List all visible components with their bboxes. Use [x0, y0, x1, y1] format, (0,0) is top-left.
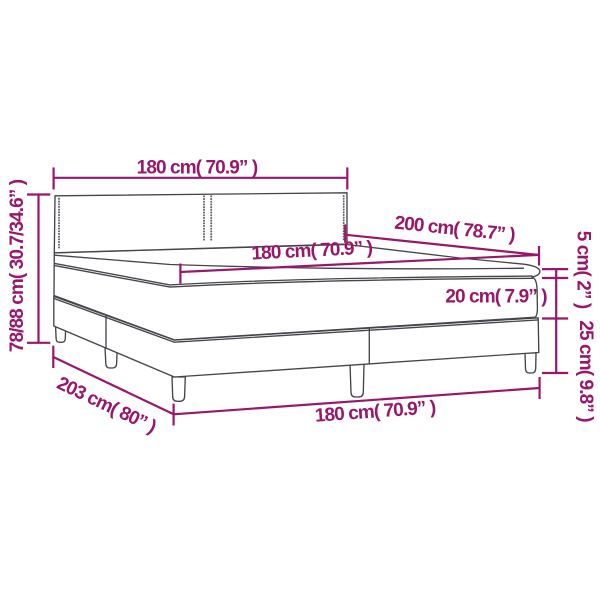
svg-text:78/88 cm( 30.7/34.6” ): 78/88 cm( 30.7/34.6” ): [7, 179, 28, 352]
svg-text:20 cm( 7.9” ): 20 cm( 7.9” ): [445, 287, 547, 308]
svg-text:25 cm( 9.8” ): 25 cm( 9.8” ): [575, 320, 596, 422]
svg-text:5 cm( 2” ): 5 cm( 2” ): [573, 231, 594, 309]
svg-text:180 cm( 70.9” ): 180 cm( 70.9” ): [137, 157, 258, 178]
